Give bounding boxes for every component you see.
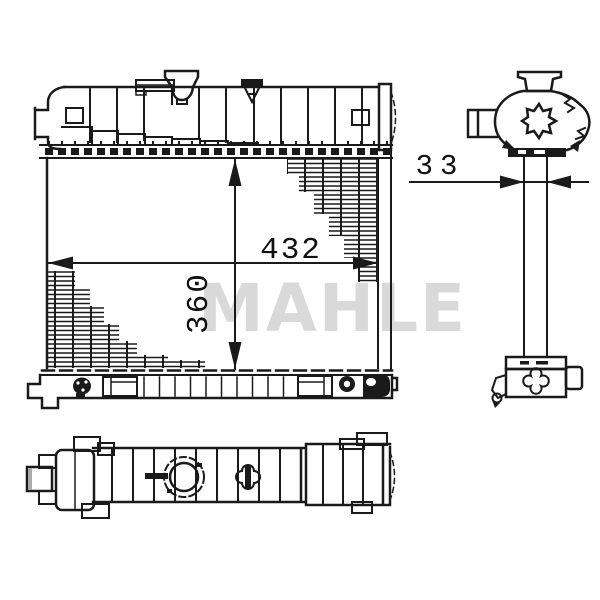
watermark-text: MAHLE <box>198 270 467 347</box>
side-view <box>468 72 589 408</box>
bottom-tank-side <box>492 357 582 408</box>
filler-neck-side <box>518 72 561 91</box>
cap-fitting-bottom <box>236 465 260 489</box>
drawing-canvas: MAHLE <box>0 0 600 600</box>
inlet-pipe <box>35 87 64 149</box>
arrow-up <box>229 159 242 186</box>
arrow-left <box>48 257 73 270</box>
core-width-label: 432 <box>260 233 322 268</box>
header-plate <box>40 143 392 158</box>
radiator-technical-drawing: MAHLE <box>0 0 600 600</box>
bottom-tank <box>28 374 397 408</box>
mount-bracket-left <box>103 377 137 396</box>
tank-boss-left <box>66 108 83 123</box>
cap-fitting <box>241 79 263 102</box>
core-height-label: 360 <box>182 272 217 334</box>
drain-plug <box>73 378 91 395</box>
tank-cross-section <box>495 91 589 152</box>
core-side <box>524 157 547 357</box>
bottom-view <box>27 433 395 518</box>
end-mount <box>363 374 390 397</box>
mounting-tab-side <box>566 367 582 389</box>
filler-opening-gear <box>522 104 556 138</box>
lobe-hole-side <box>523 368 549 394</box>
mount-bracket-right <box>298 376 332 396</box>
tank-boss-right <box>352 110 369 125</box>
dimension-core-width: 432 <box>48 233 378 270</box>
front-view <box>28 71 397 408</box>
arrow-left-in <box>547 176 571 189</box>
outlet-connector <box>27 437 114 518</box>
pipe-stub-side <box>468 110 497 137</box>
core-depth-label: 33 <box>416 150 465 183</box>
tank-end-cap <box>379 84 391 150</box>
top-tank <box>35 71 396 150</box>
arrow-down <box>229 342 242 369</box>
arrow-right-in <box>500 176 524 189</box>
